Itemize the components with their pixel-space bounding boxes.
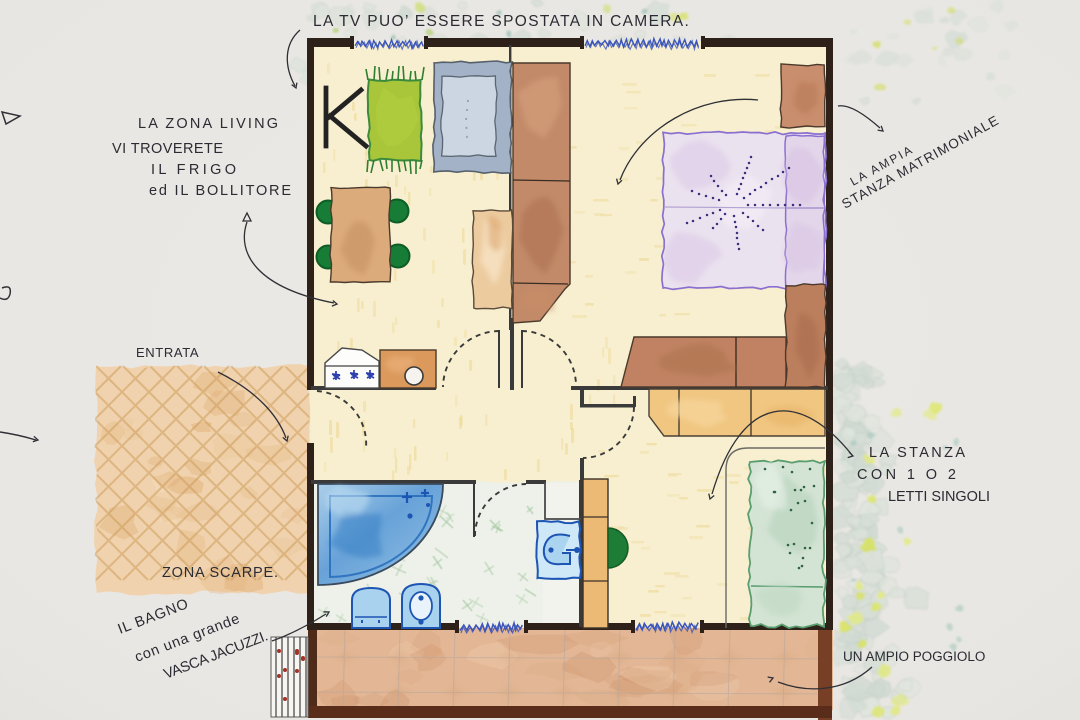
svg-text:LA ZONA LIVING: LA ZONA LIVING (138, 116, 280, 132)
svg-text:ZONA SCARPE.: ZONA SCARPE. (162, 565, 280, 581)
svg-text:VI TROVERETE: VI TROVERETE (112, 141, 225, 157)
svg-text:ed IL BOLLITORE: ed IL BOLLITORE (149, 183, 293, 199)
svg-text:LA STANZA: LA STANZA (869, 445, 967, 461)
svg-text:LA TV PUO’ ESSERE SPOSTATA IN: LA TV PUO’ ESSERE SPOSTATA IN CAMERA. (313, 13, 691, 30)
svg-text:UN AMPIO POGGIOLO: UN AMPIO POGGIOLO (843, 649, 987, 664)
svg-text:LETTI SINGOLI: LETTI SINGOLI (888, 489, 992, 505)
svg-text:CON 1 O 2: CON 1 O 2 (857, 467, 958, 483)
svg-text:ENTRATA: ENTRATA (136, 345, 200, 360)
svg-text:IL FRIGO: IL FRIGO (151, 162, 238, 178)
